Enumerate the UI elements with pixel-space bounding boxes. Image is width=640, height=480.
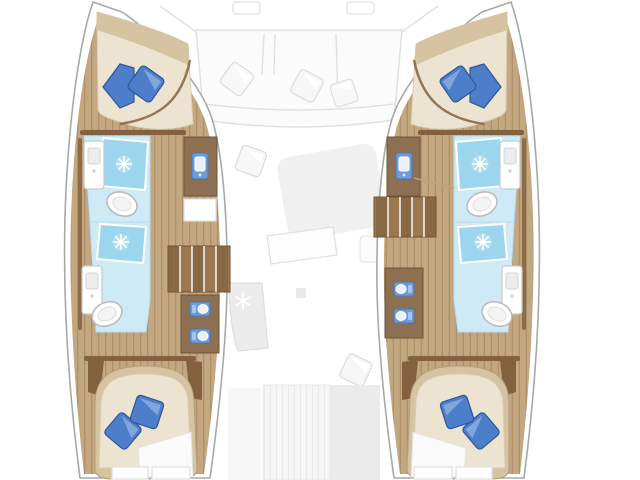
drawer-front <box>112 467 148 479</box>
shower-spray-icon <box>116 156 133 173</box>
companionway-stairs <box>168 246 230 292</box>
cockpit-bench <box>330 385 380 480</box>
sink-icon <box>190 302 210 316</box>
foredeck-hatch <box>347 2 374 14</box>
drawer-front <box>456 467 492 479</box>
vanity-cabinet-aft <box>385 268 423 338</box>
aft-head-starboard <box>454 222 522 332</box>
shower-spray-icon <box>113 234 130 251</box>
sink-icon <box>192 153 208 179</box>
coachroof-line <box>399 6 438 34</box>
dining-table <box>267 227 337 264</box>
bulkhead-trim <box>80 130 186 135</box>
companionway-stairs <box>374 197 436 237</box>
drawer-front <box>152 467 190 479</box>
sliding-door-panel <box>263 385 330 480</box>
vanity-cabinet-aft <box>181 295 219 353</box>
bulkhead-trim <box>418 130 524 135</box>
coachroof-line <box>160 6 199 34</box>
sink-icon <box>190 329 210 343</box>
aft-cabin-starboard <box>402 360 516 479</box>
mast-post <box>296 288 306 298</box>
drawer-front <box>414 467 452 479</box>
forward-cabin-port <box>96 12 193 129</box>
shower-spray-icon <box>472 156 489 173</box>
cockpit-bench <box>228 388 261 480</box>
washbasin <box>84 141 104 189</box>
yacht-floorplan <box>0 0 640 480</box>
vanity-cabinet-fwd <box>184 137 217 196</box>
forward-head-port <box>84 136 150 222</box>
aft-cabin-port <box>88 360 202 479</box>
floorplan-svg <box>0 0 640 480</box>
wardrobe-shelf <box>184 199 216 221</box>
shower-spray-icon <box>475 234 492 251</box>
aft-head-port <box>82 222 150 332</box>
sink-icon <box>394 309 414 323</box>
foredeck-hatch <box>233 2 260 14</box>
cockpit-pillow-icon <box>339 353 374 388</box>
lounge-pillow-icon <box>234 144 267 177</box>
vanity-cabinet-fwd <box>387 137 420 196</box>
aft-cockpit <box>228 353 380 480</box>
sink-icon <box>394 282 414 296</box>
washbasin <box>500 141 520 189</box>
bow-sofa <box>196 30 402 127</box>
forward-cabin-starboard <box>411 12 508 129</box>
galley-block <box>229 283 268 351</box>
forward-head-starboard <box>454 136 520 222</box>
sink-icon <box>396 153 412 179</box>
